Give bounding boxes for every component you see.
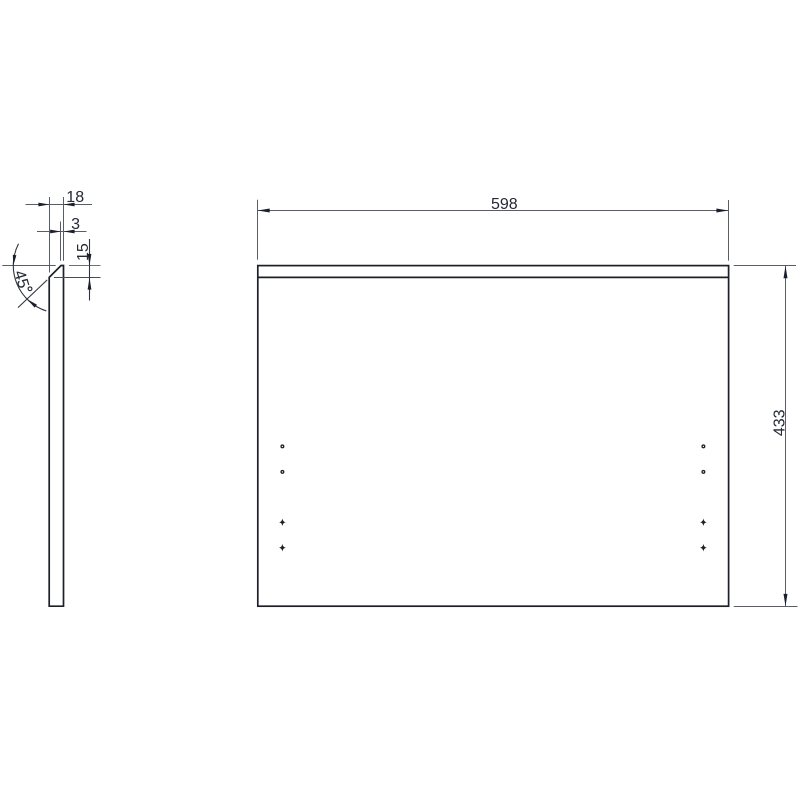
svg-text:433: 433 xyxy=(771,409,788,436)
svg-text:18: 18 xyxy=(66,189,84,206)
svg-text:598: 598 xyxy=(491,196,518,213)
svg-text:3: 3 xyxy=(71,216,80,233)
svg-text:15: 15 xyxy=(75,243,92,261)
